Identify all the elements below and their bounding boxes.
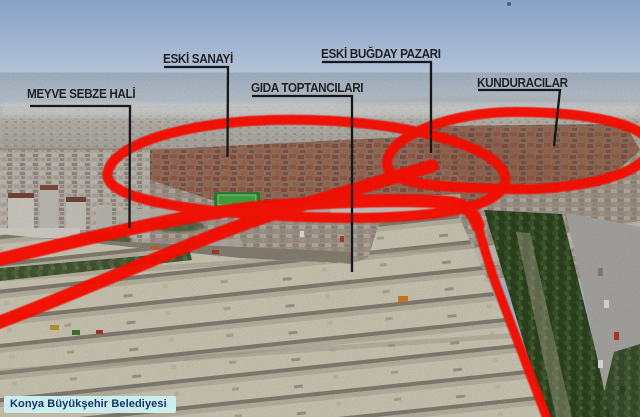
bird-speck	[507, 2, 511, 6]
label-eski-sanayi: ESKİ SANAYİ	[163, 52, 233, 66]
annotated-aerial-photo: MEYVE SEBZE HALİ ESKİ SANAYİ GIDA TOPTAN…	[0, 0, 640, 417]
label-meyve-sebze-hali: MEYVE SEBZE HALİ	[27, 87, 135, 101]
aerial-photo-canvas	[0, 0, 640, 417]
photo-grain	[0, 104, 640, 417]
label-kunduracilar: KUNDURACILAR	[477, 76, 568, 90]
label-eski-bugday-pazari: ESKİ BUĞDAY PAZARI	[321, 47, 441, 61]
label-gida-toptancilari: GIDA TOPTANCILARI	[251, 81, 363, 95]
watermark-konya-belediyesi: Konya Büyükşehir Belediyesi	[4, 396, 176, 413]
